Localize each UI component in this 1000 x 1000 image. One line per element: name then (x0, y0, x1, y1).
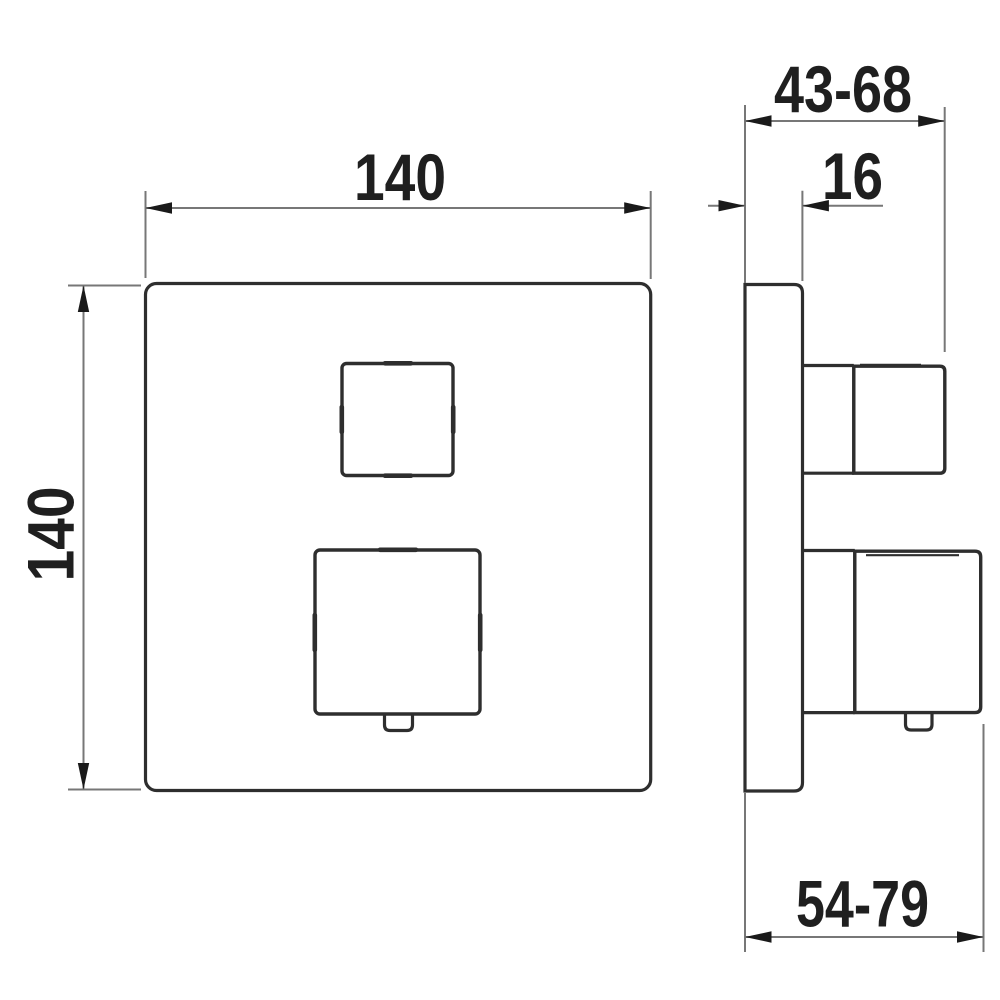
svg-text:140: 140 (354, 140, 446, 214)
svg-text:16: 16 (822, 139, 883, 213)
svg-text:43-68: 43-68 (774, 52, 912, 126)
svg-text:140: 140 (14, 487, 88, 582)
svg-text:54-79: 54-79 (796, 867, 929, 941)
